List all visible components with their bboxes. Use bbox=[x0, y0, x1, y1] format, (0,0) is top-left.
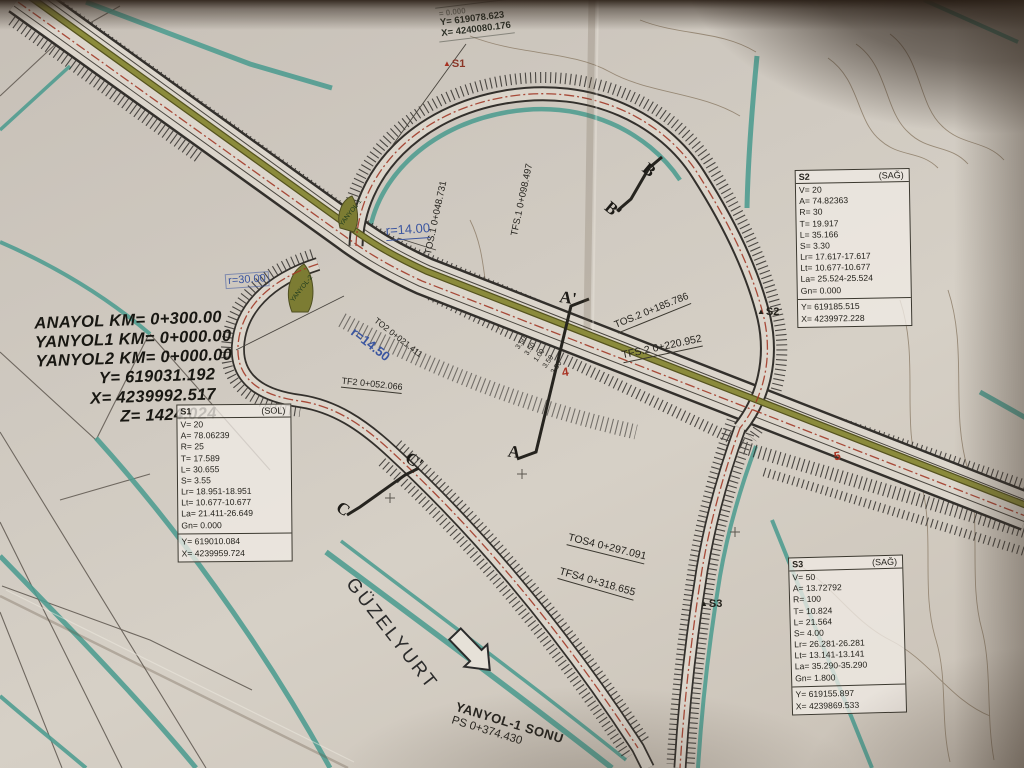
table-row: Gn= 0.000 bbox=[181, 519, 288, 531]
table-row: Lt= 10.677-10.677 bbox=[181, 497, 288, 509]
triangle-icon: ▲ bbox=[757, 307, 765, 316]
table-row: V= 20 bbox=[180, 419, 287, 431]
table-side: (SOL) bbox=[261, 406, 285, 416]
table-row: R= 25 bbox=[181, 441, 288, 453]
table-row: Gn= 1.800 bbox=[795, 670, 902, 684]
triangle-icon: ▲ bbox=[443, 59, 451, 68]
table-coord-x: X= 4239959.724 bbox=[182, 546, 289, 559]
table-id: S2 bbox=[799, 172, 810, 182]
curve-table-s3: S3 (SAĞ) V= 50 A= 13.72792 R= 100 T= 10.… bbox=[788, 555, 907, 716]
station-number-5: 5 bbox=[833, 450, 842, 465]
table-row: Gn= 0.000 bbox=[801, 284, 908, 297]
point-marker-s3: ▲S3 bbox=[700, 598, 722, 611]
point-marker-s1: ▲S1 bbox=[443, 58, 465, 71]
table-side: (SAĞ) bbox=[872, 557, 897, 568]
table-row: S= 3.55 bbox=[181, 474, 288, 486]
curve-table-s2: S2 (SAĞ) V= 20 A= 74.82363 R= 30 T= 19.9… bbox=[795, 168, 913, 328]
table-side: (SAĞ) bbox=[879, 170, 904, 180]
direction-arrow bbox=[443, 623, 501, 681]
table-row: A= 78.06239 bbox=[181, 430, 288, 442]
point-label: S1 bbox=[452, 58, 465, 70]
table-row: L= 30.655 bbox=[181, 463, 288, 475]
table-coord-y: Y= 619010.084 bbox=[181, 534, 288, 547]
table-row: T= 17.589 bbox=[181, 452, 288, 464]
table-row: La= 21.411-26.649 bbox=[181, 508, 288, 520]
radius-note-r30: r=30.00 bbox=[225, 271, 270, 289]
triangle-icon: ▲ bbox=[700, 599, 708, 608]
radius-note-r14: r=14.00 bbox=[385, 221, 431, 241]
table-id: S1 bbox=[180, 406, 191, 416]
plan-photo: = 0.000 Y= 619078.623 X= 4240080.176 ANA… bbox=[0, 0, 1024, 768]
section-letter-a-prime: A' bbox=[558, 287, 578, 309]
point-label: S2 bbox=[766, 306, 779, 318]
point-label: S3 bbox=[709, 598, 722, 610]
table-coord-x: X= 4239869.533 bbox=[796, 697, 903, 712]
point-marker-s2: ▲S2 bbox=[757, 306, 779, 319]
table-row: Lr= 18.951-18.951 bbox=[181, 486, 288, 498]
table-coord-x: X= 4239972.228 bbox=[801, 311, 908, 325]
curve-table-s1: S1 (SOL) V= 20 A= 78.06239 R= 25 T= 17.5… bbox=[176, 404, 292, 563]
table-id: S3 bbox=[792, 559, 803, 569]
